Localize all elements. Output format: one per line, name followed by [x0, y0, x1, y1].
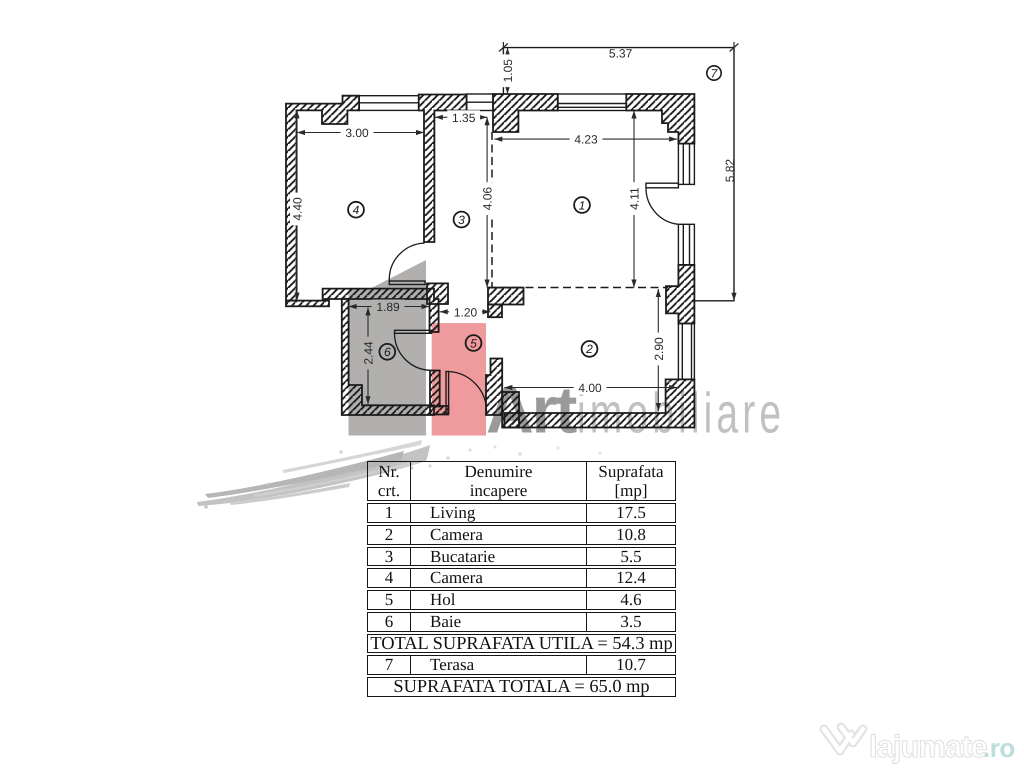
svg-text:1.05: 1.05	[501, 59, 515, 83]
svg-text:4: 4	[353, 203, 360, 217]
svg-text:7: 7	[711, 66, 719, 80]
svg-text:3: 3	[458, 213, 465, 227]
svg-text:4.11: 4.11	[628, 187, 642, 210]
svg-text:5: 5	[470, 336, 477, 350]
svg-text:2.90: 2.90	[652, 337, 666, 361]
svg-text:4.23: 4.23	[574, 133, 598, 147]
svg-text:4.00: 4.00	[578, 381, 602, 395]
svg-text:lajumate: lajumate	[869, 729, 988, 764]
svg-text:5.82: 5.82	[723, 159, 737, 183]
svg-text:2: 2	[585, 342, 593, 356]
svg-text:6: 6	[384, 345, 391, 359]
svg-text:5.37: 5.37	[609, 47, 633, 61]
svg-text:1.35: 1.35	[452, 111, 476, 125]
svg-text:1.89: 1.89	[376, 300, 400, 314]
svg-text:1.20: 1.20	[454, 305, 478, 319]
svg-text:4.40: 4.40	[291, 197, 305, 221]
svg-text:4.06: 4.06	[481, 187, 495, 211]
svg-text:3.00: 3.00	[345, 126, 369, 140]
svg-text:.ro: .ro	[983, 733, 1015, 763]
svg-text:2.44: 2.44	[362, 341, 376, 365]
svg-text:1: 1	[579, 198, 586, 212]
